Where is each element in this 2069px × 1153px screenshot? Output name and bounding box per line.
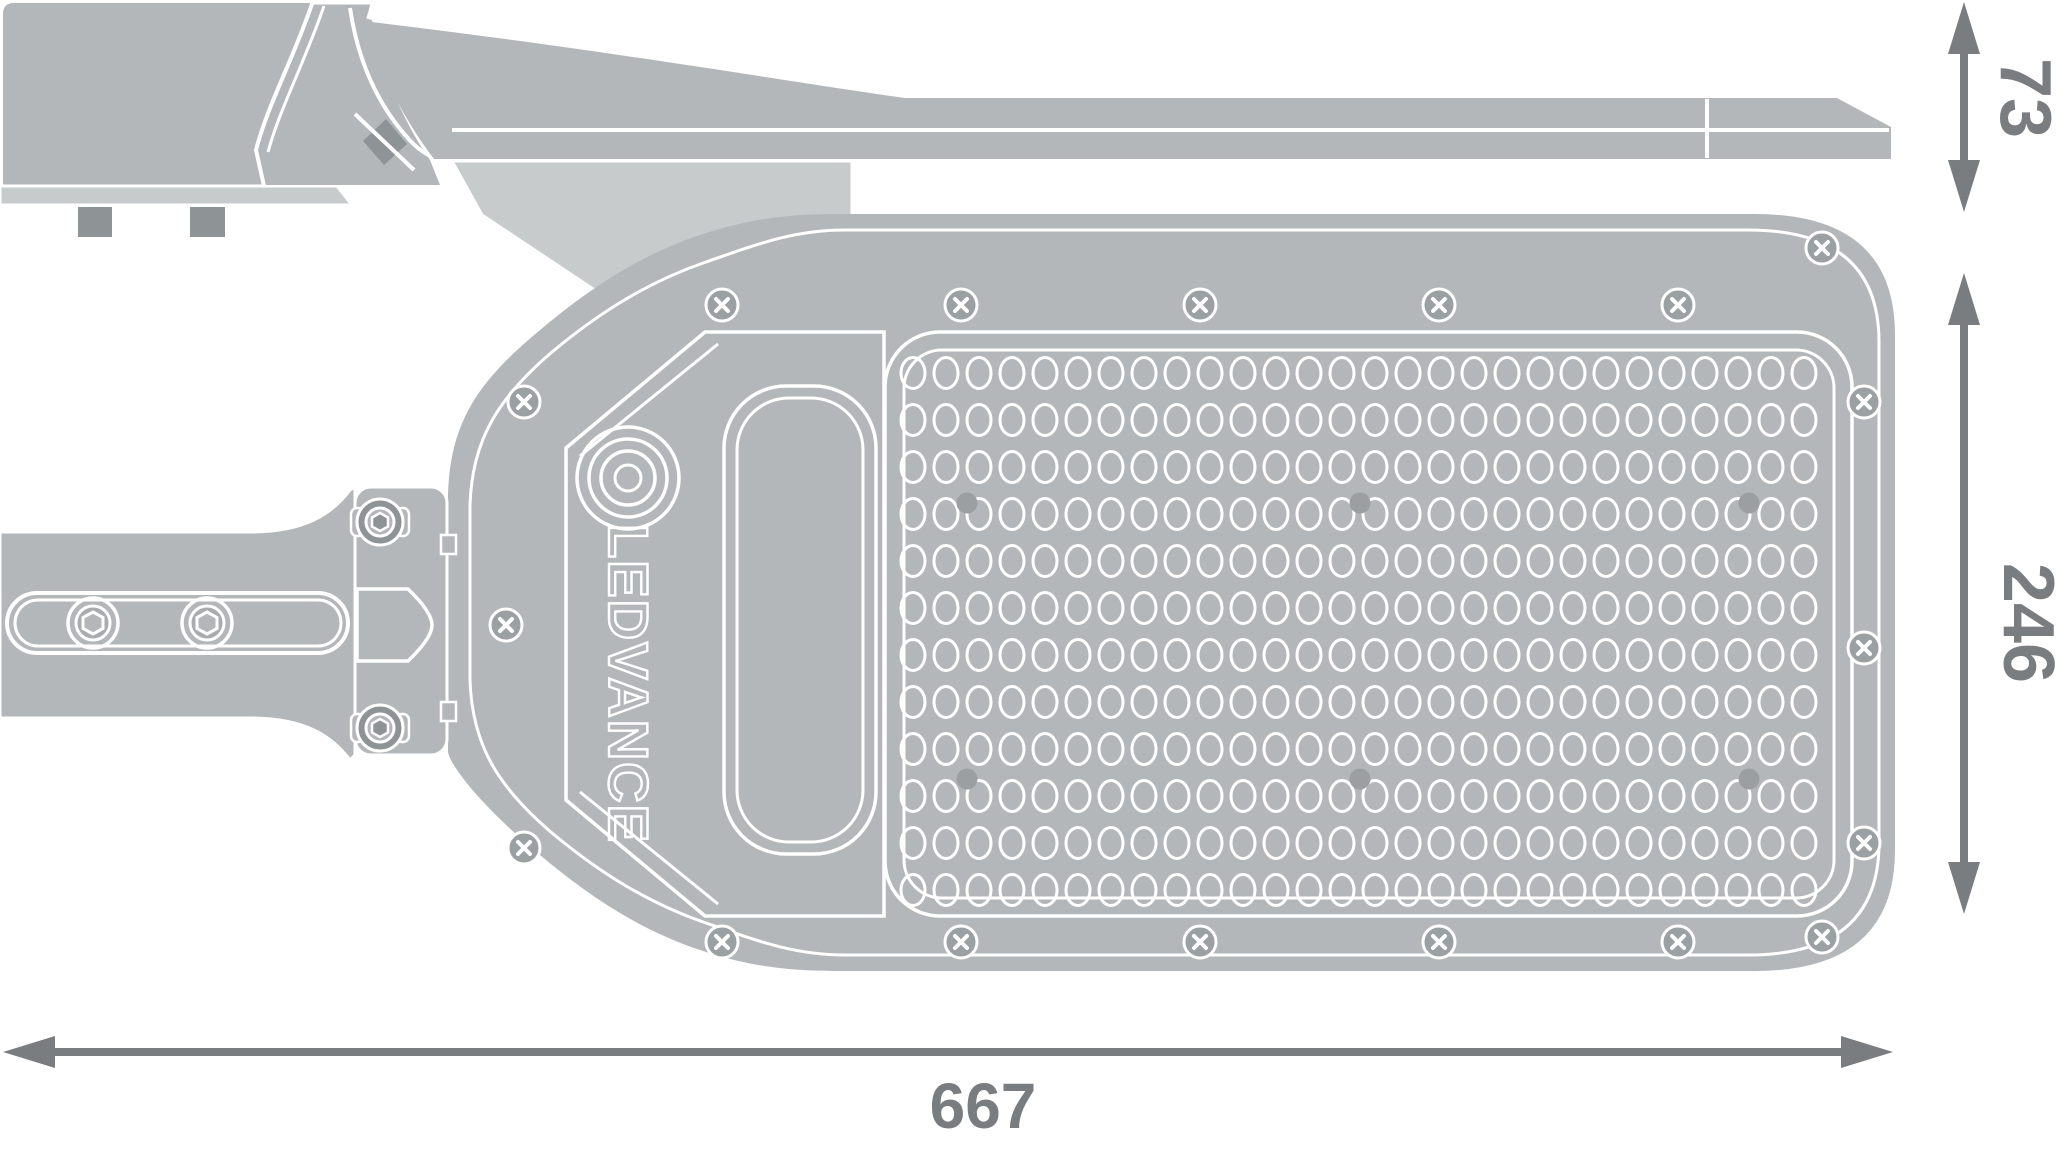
dimension-side-height: 73 — [1948, 2, 2065, 212]
phillips-screw-icon — [1848, 632, 1880, 664]
lens-screw-dot — [957, 493, 978, 514]
phillips-screw-icon — [1806, 921, 1838, 953]
phillips-screw-icon — [1423, 289, 1455, 321]
dimension-total-length: 667 — [3, 1036, 1893, 1142]
lens-screw-dot — [1739, 769, 1760, 790]
dimension-value-667: 667 — [930, 1070, 1037, 1142]
lens-screw-dot — [1350, 769, 1371, 790]
side-mount-block-base — [0, 186, 352, 205]
phillips-screw-icon — [706, 926, 738, 958]
phillips-screw-icon — [945, 289, 977, 321]
phillips-screw-icon — [1848, 827, 1880, 859]
housing-clip — [441, 535, 456, 554]
luminaire-dimension-drawing: LEDVANCE — [0, 0, 2069, 1153]
plan-arm — [0, 487, 355, 760]
arrow-up-icon — [1948, 2, 1980, 54]
technical-drawing-page: LEDVANCE — [0, 0, 2069, 1153]
phillips-screw-icon — [706, 289, 738, 321]
phillips-screw-icon — [1662, 926, 1694, 958]
phillips-screw-icon — [490, 609, 522, 641]
brand-logo: LEDVANCE — [597, 524, 660, 844]
arm-hex-bolt-icon — [182, 598, 232, 648]
lens-screw-dot — [1739, 493, 1760, 514]
phillips-screw-icon — [1662, 289, 1694, 321]
dimension-value-73: 73 — [1985, 58, 2065, 138]
arrow-down-icon — [1948, 160, 1980, 212]
side-mount-tab — [190, 207, 225, 237]
side-mount-tab — [78, 207, 112, 237]
side-blade — [372, 22, 1891, 159]
arm-hex-bolt-icon — [68, 598, 118, 648]
phillips-screw-icon — [945, 926, 977, 958]
dimension-value-246: 246 — [1988, 563, 2068, 683]
phillips-screw-icon — [508, 386, 540, 418]
dimension-plan-height: 246 — [1948, 273, 2068, 914]
phillips-screw-icon — [508, 832, 540, 864]
lens-screw-dot — [957, 769, 978, 790]
plan-view: LEDVANCE — [0, 214, 1895, 971]
phillips-screw-icon — [1184, 926, 1216, 958]
arrow-left-icon — [3, 1036, 55, 1068]
arrow-up-icon — [1948, 273, 1980, 325]
phillips-screw-icon — [1423, 926, 1455, 958]
arrow-down-icon — [1948, 862, 1980, 914]
housing-clip — [441, 702, 456, 721]
phillips-screw-icon — [1848, 386, 1880, 418]
lens-screw-dot — [1350, 493, 1371, 514]
arrow-right-icon — [1841, 1036, 1893, 1068]
phillips-screw-icon — [1806, 232, 1838, 264]
phillips-screw-icon — [1184, 289, 1216, 321]
